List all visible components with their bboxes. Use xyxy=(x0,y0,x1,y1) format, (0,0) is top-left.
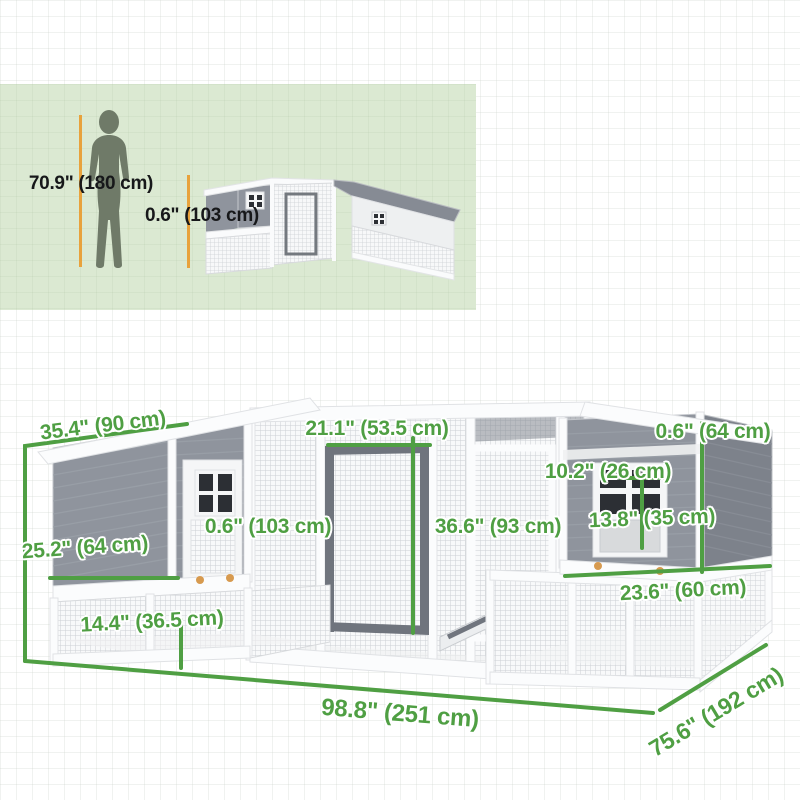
knob xyxy=(594,562,602,570)
person-height-label: 70.9" (180 cm) xyxy=(29,173,153,195)
dimension-label-right-roof-height: 0.6" (64 cm) xyxy=(656,420,771,444)
knob xyxy=(196,576,204,584)
product-dimension-diagram: 70.9" (180 cm) 0.6" (103 cm) xyxy=(0,0,800,800)
thumb-left-run xyxy=(206,233,272,274)
coop-height-label: 0.6" (103 cm) xyxy=(145,205,259,227)
dimension-label-top-door-width: 21.1" (53.5 cm) xyxy=(305,417,448,441)
dimension-label-window-height: 13.8" (35 cm) xyxy=(588,505,715,533)
coop-thumbnail xyxy=(202,170,464,295)
dimension-label-window-width: 10.2" (26 cm) xyxy=(545,460,671,484)
dimension-label-run-height: 36.6" (93 cm) xyxy=(435,515,561,539)
size-comparison-panel: 70.9" (180 cm) 0.6" (103 cm) xyxy=(0,84,476,310)
knob xyxy=(226,574,234,582)
dimension-label-left-door-height: 0.6" (103 cm) xyxy=(205,515,331,539)
